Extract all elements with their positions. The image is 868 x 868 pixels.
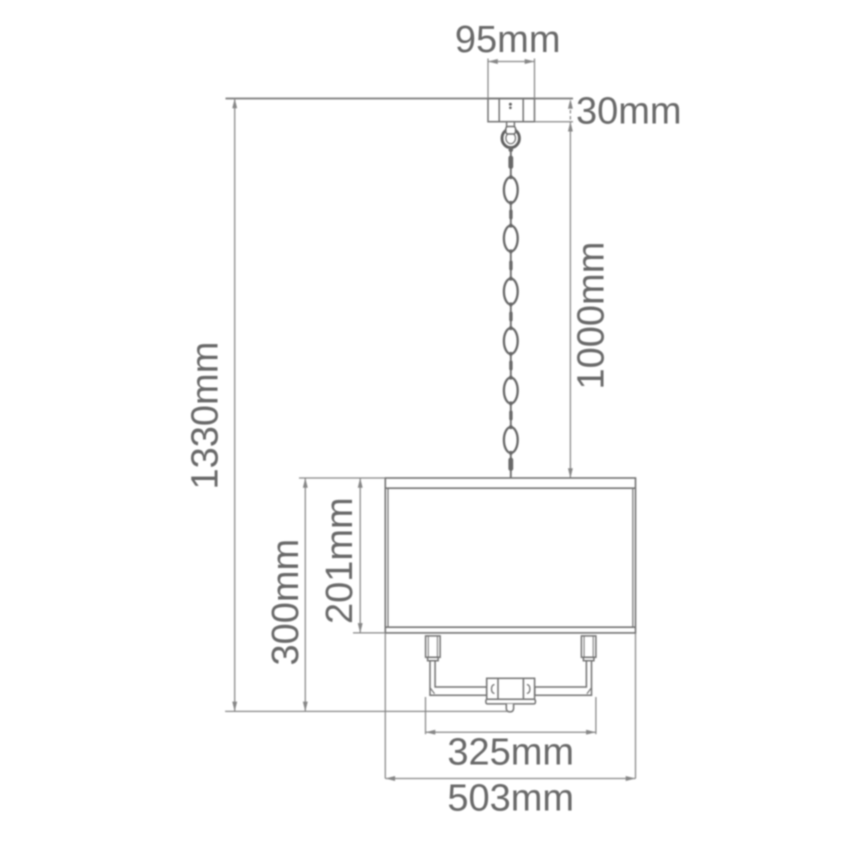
- svg-text:30mm: 30mm: [576, 91, 682, 133]
- svg-text:1000mm: 1000mm: [571, 242, 613, 390]
- svg-text:300mm: 300mm: [265, 539, 307, 666]
- svg-text:95mm: 95mm: [455, 19, 561, 61]
- svg-text:503mm: 503mm: [447, 778, 574, 820]
- svg-text:201mm: 201mm: [319, 497, 361, 624]
- svg-text:1330mm: 1330mm: [185, 342, 227, 490]
- svg-text:325mm: 325mm: [447, 732, 574, 774]
